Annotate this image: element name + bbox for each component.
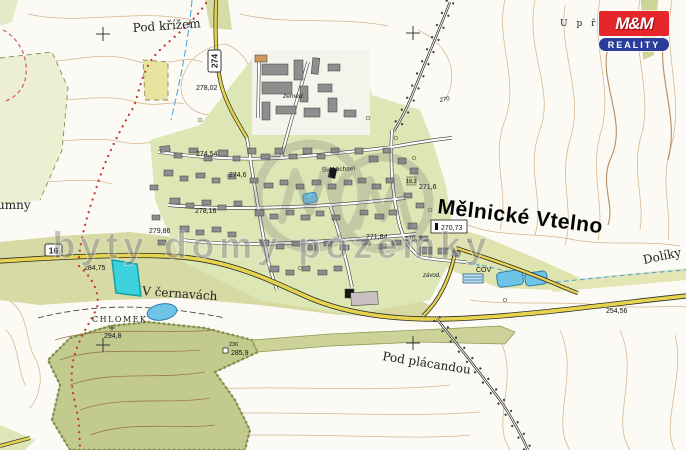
label-zemed: zeměd.: [282, 93, 305, 100]
building: [328, 98, 337, 112]
building: [389, 210, 397, 215]
building: [218, 150, 228, 156]
building: [152, 215, 160, 220]
building: [304, 108, 320, 117]
building: [170, 198, 180, 204]
elevation-278-16: 278,16: [195, 208, 217, 215]
building: [318, 270, 327, 275]
building: [334, 266, 342, 271]
building: [186, 203, 194, 208]
elevation-285-9: 285,9: [231, 350, 249, 357]
building: [289, 154, 297, 159]
building: [270, 214, 278, 219]
building: [218, 205, 226, 210]
building: [351, 291, 379, 305]
building: [294, 60, 303, 80]
building: [180, 176, 188, 181]
building: [174, 153, 182, 158]
road-badge-274: 274: [208, 50, 221, 72]
building: [303, 148, 312, 154]
building: [302, 266, 310, 271]
building: [262, 64, 288, 75]
building: [318, 84, 332, 92]
building: [355, 148, 363, 154]
building: [383, 148, 391, 153]
building: [270, 266, 279, 272]
elevation-284-75: 284,75: [84, 265, 106, 272]
elevation-254-56: 254,56: [606, 308, 628, 315]
elevation-236: 236: [229, 342, 238, 348]
building: [262, 102, 270, 120]
label-zavod: závod.: [422, 273, 441, 279]
realty-logo-brand: M&M: [615, 14, 653, 34]
building: [248, 148, 256, 154]
building: [233, 156, 240, 161]
road-number-274: 274: [210, 54, 220, 68]
building: [264, 183, 273, 188]
label-cov: ČOV: [476, 265, 492, 274]
realty-logo-mark: M&M: [599, 11, 669, 36]
cov-tank: [463, 274, 483, 283]
realty-logo: M&M REALITY: [599, 11, 669, 51]
pond-east-1: [496, 269, 524, 287]
building: [212, 178, 220, 183]
watermark-text: byty domy pozemky: [53, 225, 492, 266]
label-chlomek: CHLOMEK: [92, 315, 147, 324]
elevation-294-8: 294,8: [104, 333, 122, 340]
building: [234, 201, 242, 206]
elevation-274-54: 274,54: [196, 151, 218, 158]
building: [150, 185, 158, 190]
building: [280, 180, 288, 185]
building: [328, 64, 340, 71]
elevation-18-2: 18,2: [406, 179, 417, 185]
elevation-278-02: 278,02: [196, 85, 218, 92]
building: [286, 270, 294, 275]
map-canvas[interactable]: 16 274 278,02 274,54 274,6 278,16 279,86…: [0, 0, 686, 450]
building: [202, 200, 211, 205]
building: [160, 145, 171, 152]
building: [164, 170, 173, 176]
label-humny: umny: [0, 198, 31, 212]
elevation-274-6: 274,6: [229, 172, 247, 179]
building: [196, 173, 205, 178]
building: [344, 110, 356, 117]
building: [316, 211, 324, 216]
building: [311, 58, 320, 75]
building: [255, 55, 267, 62]
building: [317, 154, 325, 159]
building: [276, 106, 296, 114]
building: [416, 203, 424, 208]
realty-logo-tagline: REALITY: [599, 38, 669, 51]
topographic-map: 16 274 278,02 274,54 274,6 278,16 279,86…: [0, 0, 686, 450]
